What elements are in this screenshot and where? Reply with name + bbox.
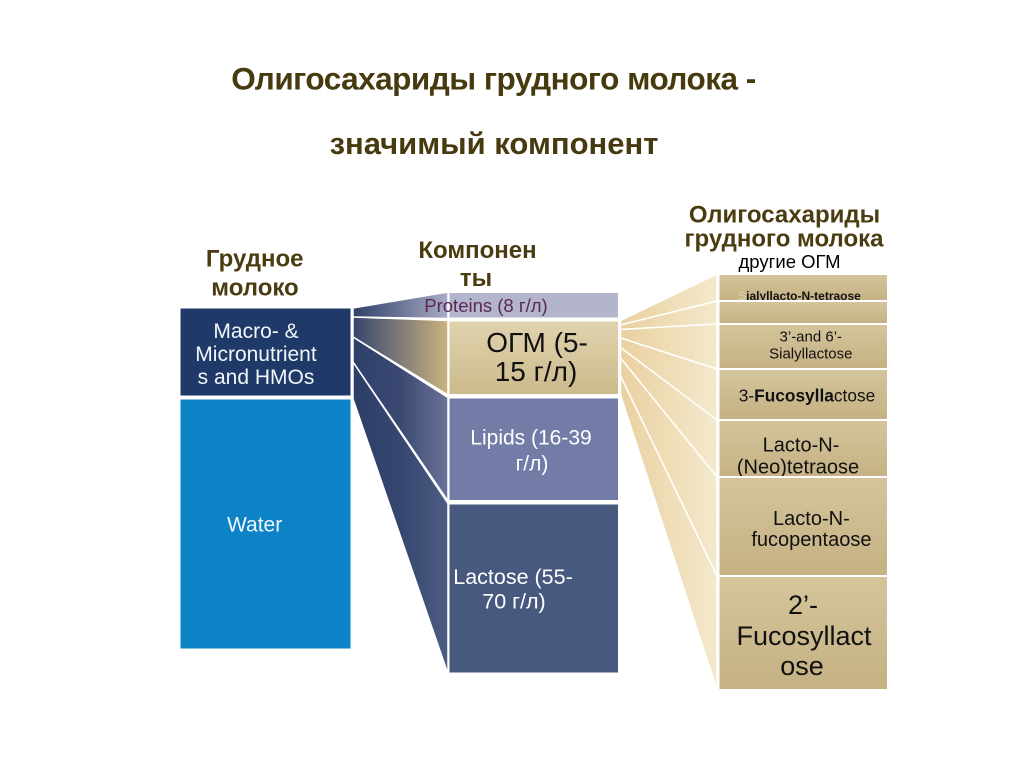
svg-text:ты: ты (460, 265, 492, 292)
svg-text:Олигосахариды грудного молока: Олигосахариды грудного молока - (231, 61, 756, 97)
svg-text:15 г/л): 15 г/л) (495, 356, 578, 387)
svg-text:значимый компонент: значимый компонент (330, 126, 659, 161)
svg-text:Lacto-N-: Lacto-N- (763, 435, 840, 457)
svg-text:s and HMOs: s and HMOs (198, 366, 315, 389)
svg-text:Олигосахариды: Олигосахариды (689, 202, 880, 229)
svg-text:Sialyllactose: Sialyllactose (769, 346, 852, 363)
svg-text:грудного молока: грудного молока (685, 226, 885, 253)
svg-text:Fucosyllact: Fucosyllact (736, 621, 872, 651)
svg-text:Компонен: Компонен (418, 237, 536, 264)
svg-text:молоко: молоко (211, 275, 298, 302)
svg-text:другие ОГМ: другие ОГМ (738, 251, 840, 272)
svg-text:ose: ose (780, 651, 824, 681)
svg-text:Micronutrient: Micronutrient (195, 343, 317, 366)
svg-text:Lactose (55-: Lactose (55- (453, 565, 573, 589)
svg-text:3’-and 6’-: 3’-and 6’- (780, 329, 843, 346)
svg-text:3-Fucosyllactose: 3-Fucosyllactose (739, 386, 875, 406)
svg-text:ОГМ (5-: ОГМ (5- (486, 327, 588, 358)
svg-text:(Neo)tetraose: (Neo)tetraose (737, 457, 859, 479)
svg-text:Macro- &: Macro- & (213, 320, 298, 343)
svg-text:70 г/л): 70 г/л) (482, 590, 545, 614)
svg-text:г/л): г/л) (516, 453, 549, 476)
svg-text:Proteins (8 г/л): Proteins (8 г/л) (424, 295, 547, 316)
svg-text:fucopentaose: fucopentaose (751, 529, 871, 551)
svg-text:Water: Water (227, 514, 282, 537)
svg-text:Грудное: Грудное (206, 246, 304, 273)
svg-text:2’-: 2’- (788, 590, 818, 620)
svg-text:Lacto-N-: Lacto-N- (773, 508, 850, 530)
svg-text:Lipids (16-39: Lipids (16-39 (470, 427, 591, 450)
